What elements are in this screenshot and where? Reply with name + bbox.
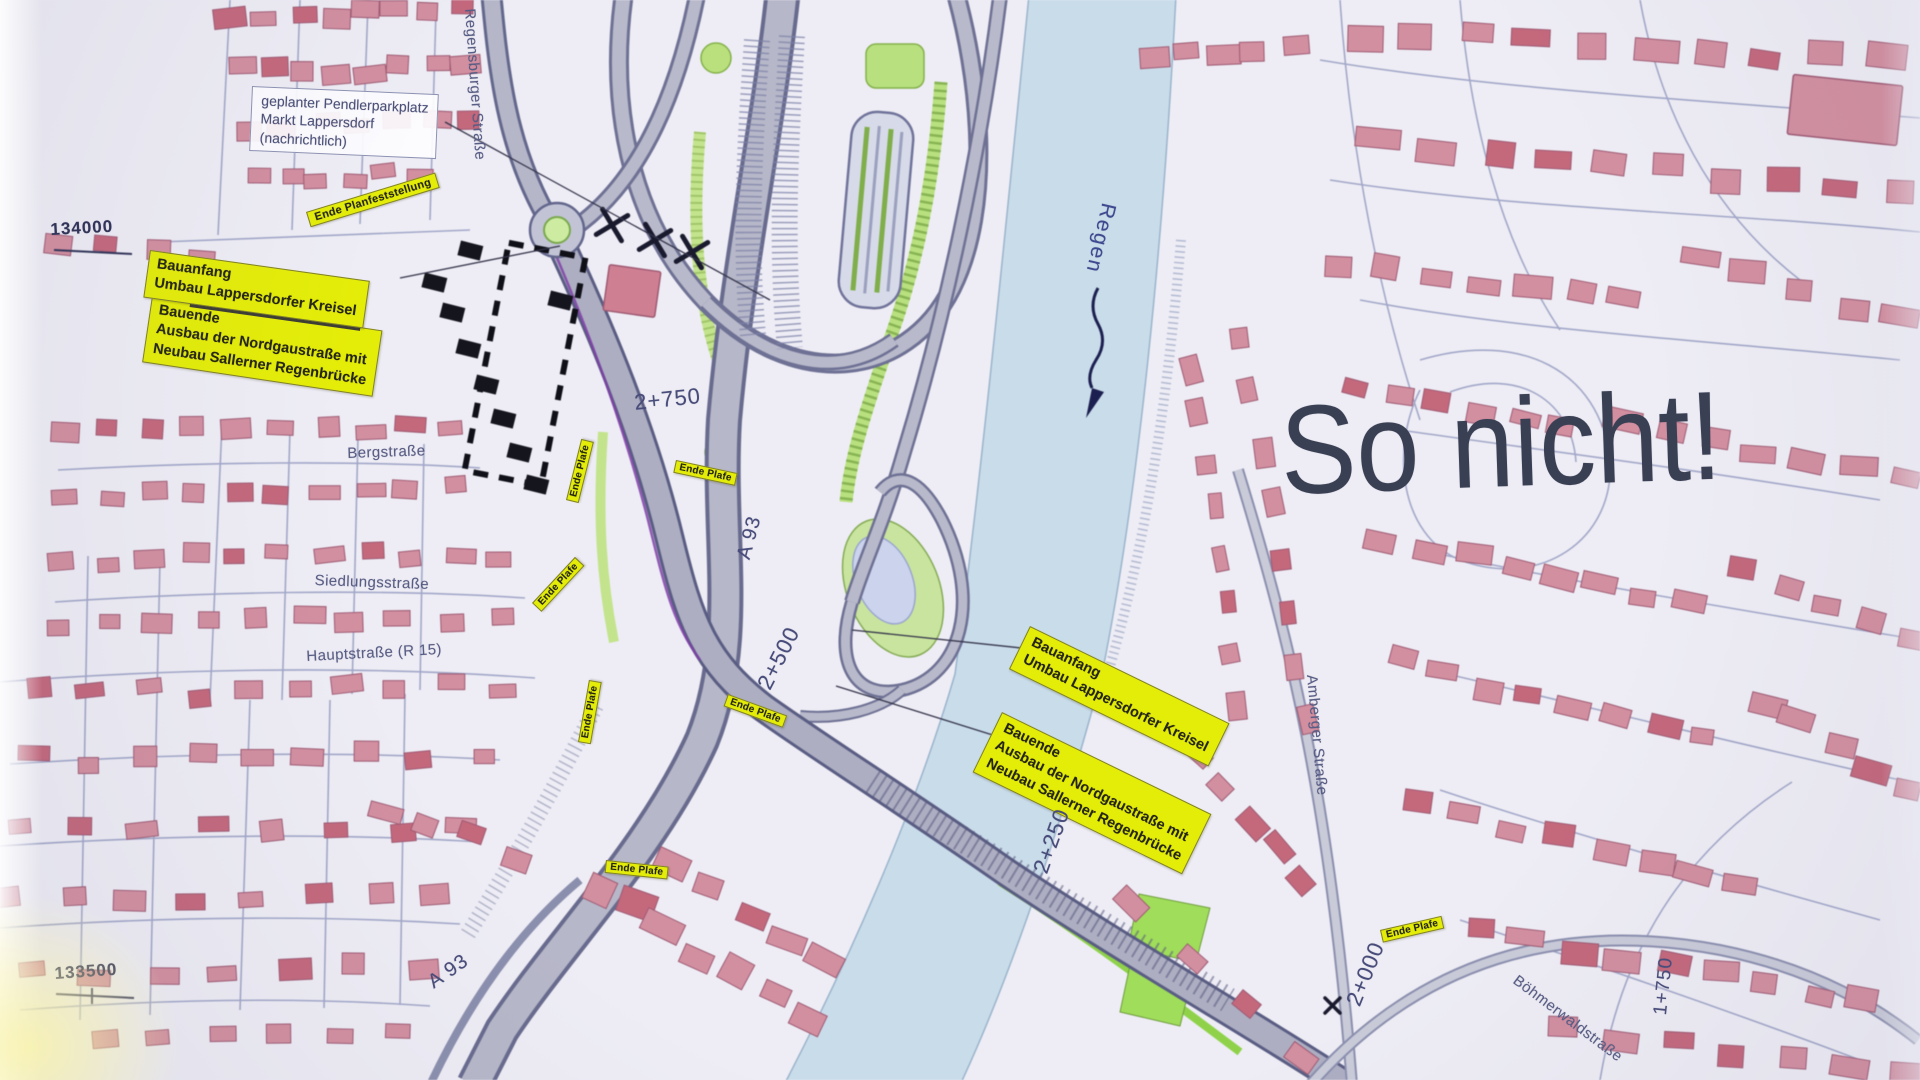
chainage-2250: 2+250 [1028,805,1075,877]
street-label-boehmerwaldstrasse: Böhmerwaldstraße [1510,972,1626,1065]
ende-plafe-label: Ende Plafe [1380,916,1444,943]
river-label: Regen [1080,201,1120,276]
ende-plafe-label: Ende Plafe [724,694,788,728]
ende-plafe-label: Ende Plafe [673,460,737,486]
site-plan-photo: 134000 133500 geplanter Pendlerparkplatz… [0,0,1920,1080]
street-label-bergstrasse: Bergstraße [347,442,426,462]
ende-plafe-label: Ende Plafe [532,557,585,612]
ende-plafe-label: Ende Plafe [566,439,594,503]
street-label-hauptstrasse: Hauptstraße (R 15) [306,641,442,665]
highway-label-a93-upper: A 93 [733,513,767,561]
so-nicht-annotation: So nicht! [1278,363,1724,523]
chainage-1750: 1+750 [1650,956,1678,1016]
street-label-siedlungsstrasse: Siedlungsstraße [314,572,429,593]
ende-plafe-label: Ende Plafe [605,860,669,880]
grid-label-north: 134000 [50,217,114,240]
chainage-2500: 2+500 [752,622,805,693]
chainage-2000: 2+000 [1341,938,1390,1010]
highway-label-a93-lower: A 93 [424,950,473,994]
label-ende-planfeststellung: Ende Planfeststellung [306,172,440,227]
note-pendlerparkplatz: geplanter Pendlerparkplatz Markt Lappers… [249,86,439,160]
grid-label-south: 133500 [54,960,118,984]
bauende-east-line2: Ausbau der Nordgaustraße mit [991,737,1193,849]
labels-layer: 134000 133500 geplanter Pendlerparkplatz… [0,0,1920,1080]
street-label-amberger: Amberger Straße [1303,674,1330,796]
ende-plafe-label: Ende Plafe [578,680,602,744]
chainage-2750: 2+750 [633,383,702,416]
street-label-regensburger: Regensburger Straße [461,8,489,161]
